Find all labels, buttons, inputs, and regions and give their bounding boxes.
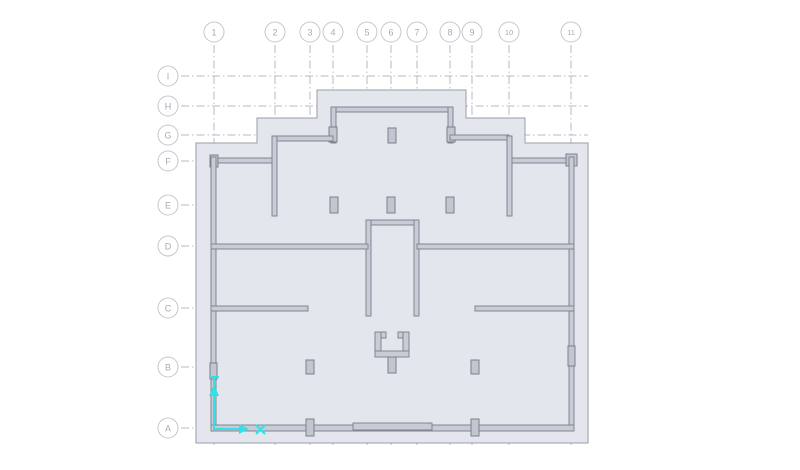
wall-core-right	[414, 220, 419, 316]
column-below-stair-core	[388, 357, 396, 373]
column-a-grid3	[306, 419, 314, 436]
grid-label-row-F: F	[165, 157, 171, 167]
column-e-grid4	[330, 197, 338, 213]
column-b-grid8	[471, 360, 479, 374]
wall-c-left	[211, 306, 308, 311]
grid-label-column-10: 10	[505, 28, 513, 37]
grid-label-column-7: 7	[414, 28, 419, 38]
column-b-grid3	[306, 360, 314, 374]
wall-grid2-vertical	[272, 136, 277, 216]
wall-f-left	[212, 158, 274, 163]
grid-label-column-8: 8	[447, 28, 452, 38]
grid-label-column-9: 9	[469, 28, 474, 38]
grid-label-row-B: B	[165, 363, 171, 373]
grid-label-column-11: 11	[567, 28, 575, 37]
grid-label-column-3: 3	[307, 28, 312, 38]
floor-plan-drawing: 1234567891011IHGFEDCBA	[0, 0, 800, 470]
wall-c-right	[475, 306, 574, 311]
floor-plan-canvas: 1234567891011IHGFEDCBA	[0, 0, 800, 470]
grid-label-row-I: I	[167, 72, 170, 82]
grid-label-row-C: C	[165, 304, 172, 314]
wall-g-right	[450, 135, 509, 140]
grid-label-column-6: 6	[388, 28, 393, 38]
wall-d-right	[417, 244, 574, 249]
wall-a-middle-overlay	[353, 423, 432, 430]
wall-grid10-vertical	[507, 136, 512, 216]
wall-top-core-horizontal	[333, 107, 452, 112]
wall-core-left	[366, 220, 371, 316]
grid-label-row-D: D	[165, 242, 172, 252]
column-e-grid8	[446, 197, 454, 213]
grid-label-row-E: E	[165, 201, 171, 211]
column-a-grid8	[471, 419, 479, 436]
column-g-center	[388, 128, 396, 143]
grid-label-column-5: 5	[364, 28, 369, 38]
wall-d-left	[211, 244, 368, 249]
grid-label-column-2: 2	[272, 28, 277, 38]
wall-g-left	[273, 136, 333, 141]
column-right-perimeter-cap	[568, 346, 575, 366]
wall-f-right	[509, 158, 571, 163]
grid-label-row-A: A	[165, 424, 171, 434]
wall-right-perimeter	[569, 157, 574, 430]
grid-label-row-H: H	[165, 102, 172, 112]
wall-core-horizontal	[366, 220, 419, 225]
column-e-grid6	[387, 197, 395, 213]
stair-core-bottom-wall	[375, 351, 409, 357]
grid-label-row-G: G	[164, 131, 171, 141]
grid-label-column-1: 1	[211, 28, 216, 38]
grid-label-column-4: 4	[330, 28, 335, 38]
